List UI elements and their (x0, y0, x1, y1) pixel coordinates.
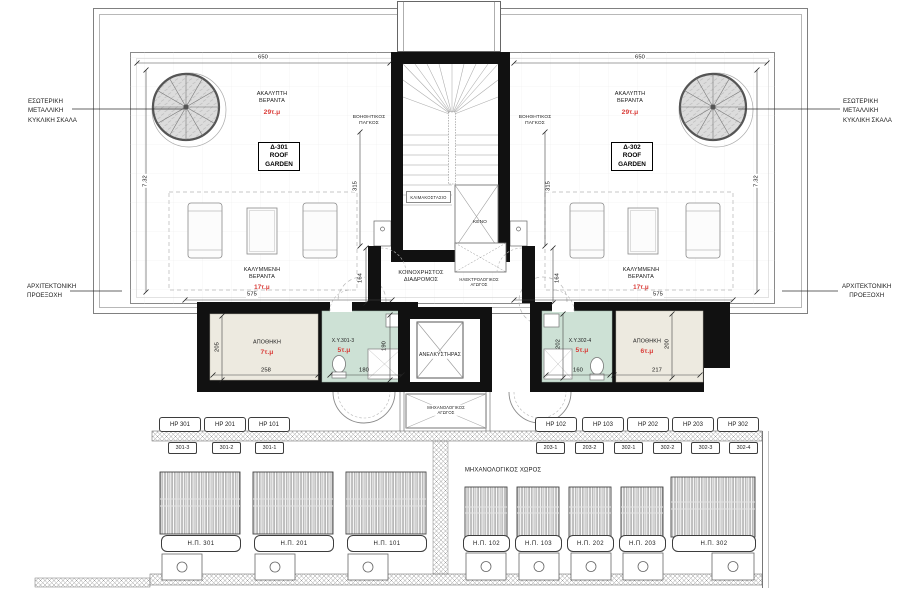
bench-label-right: ΒΟΗΘΗΤΙΚΟΣ ΠΑΓΚΟΣ (519, 115, 552, 127)
pergola-plate-101: Η.Π. 101 (347, 535, 427, 552)
void-label: ΚΕΝΟ (473, 220, 487, 226)
unit-tag-203-1: 203-1 (536, 442, 565, 454)
dim-storage-l-h: 205 (214, 341, 221, 353)
spiral-stair-note-left: ΕΣΩΤΕΡΙΚΗ ΜΕΤΑΛΛΙΚΗ ΚΥΚΛΙΚΗ ΣΚΑΛΑ (28, 97, 77, 125)
projection-note-right: ΑΡΧΙΤΕΚΤΟΝΙΚΗ ΠΡΟΕΞΟΧΗ (842, 282, 891, 301)
covered-label-right: ΚΑΛΥΜΜΕΝΗ ΒΕΡΑΝΤΑ (623, 267, 660, 281)
hp-tag-301: HP 301 (159, 417, 201, 432)
dim-wc-r-h: 202 (555, 338, 562, 350)
elevator-label: ΑΝΕΛΚΥΣΤΗΡΑΣ (418, 352, 462, 359)
unit-tag-301-1: 301-1 (255, 442, 284, 454)
dim-wc-l-h: 190 (381, 340, 388, 352)
dim-terrace-left: 315 (352, 180, 359, 192)
dim-storage-r-h: 200 (664, 338, 671, 350)
wc-left-area: 5τ.μ (338, 347, 351, 355)
hp-tag-203: HP 203 (672, 417, 714, 432)
stairwell-label: ΚΛΙΜΑΚΟΣΤΑΣΙΟ (406, 191, 451, 203)
unit-tag-301-3: 301-3 (168, 442, 197, 454)
stair-bulkhead (398, 2, 501, 52)
dim-roof-depth-right: 7.32 (753, 174, 760, 188)
pergola-plate-203: Η.Π. 203 (619, 535, 666, 552)
storage-right-area: 6τ.μ (641, 348, 654, 356)
unit-tag-302-4: 302-4 (729, 442, 758, 454)
toilet-left (333, 356, 346, 373)
pergola-plate-102: Η.Π. 102 (463, 535, 510, 552)
mechanical-duct-label: ΜΗΧΑΝΟΛΟΓΙΚΟΣ ΑΓΩΓΟΣ (426, 405, 466, 416)
dim-terrace-right: 315 (545, 180, 552, 192)
dim-storage-l-w: 258 (260, 367, 272, 374)
spiral-stair-note-right: ΕΣΩΤΕΡΙΚΗ ΜΕΤΑΛΛΙΚΗ ΚΥΚΛΙΚΗ ΣΚΑΛΑ (843, 97, 892, 125)
corridor-label: ΚΟΙΝΟΧΡΗΣΤΟΣ ΔΙΑΔΡΟΜΟΣ (398, 270, 443, 284)
storage-right-name: ΑΠΟΘΗΚΗ (633, 339, 661, 346)
wc-right-area: 5τ.μ (576, 347, 589, 355)
dim-wc-l-w: 180 (358, 367, 370, 374)
wc-right-name: X.Y.302-4 (569, 338, 592, 344)
hp-tag-103: HP 103 (582, 417, 624, 432)
toilet-right (591, 358, 604, 375)
terrace-label-right: ΑΚΑΛΥΠΤΗ ΒΕΡΑΝΤΑ (615, 91, 646, 105)
projection-note-left: ΑΡΧΙΤΕΚΤΟΝΙΚΗ ΠΡΟΕΞΟΧΗ (27, 282, 76, 301)
floorplan-linework (0, 0, 901, 589)
covered-label-left: ΚΑΛΥΜΜΕΝΗ ΒΕΡΑΝΤΑ (244, 267, 281, 281)
pergola-plate-201: Η.Π. 201 (254, 535, 334, 552)
unit-tag-302-3: 302-3 (691, 442, 720, 454)
hp-tag-102: HP 102 (535, 417, 577, 432)
pergolas (160, 472, 755, 537)
hp-tag-101: HP 101 (248, 417, 290, 432)
sink-right (544, 314, 559, 327)
dim-corridor-right: 164 (554, 272, 561, 284)
hp-tag-302: HP 302 (717, 417, 759, 432)
unit-tag-302-2: 302-2 (653, 442, 682, 454)
stair-tower (391, 52, 510, 262)
electrical-duct-label: ΗΛΕΚΤΡΟΛΟΓΙΚΟΣ ΑΓΩΓΟΣ (459, 277, 498, 288)
dim-wc-r-w: 160 (572, 367, 584, 374)
pergola-plate-301: Η.Π. 301 (161, 535, 241, 552)
unit-box-301: Δ-301 ROOF GARDEN (258, 142, 300, 171)
dim-roof-depth-left: 7.32 (142, 174, 149, 188)
storage-left-name: ΑΠΟΘΗΚΗ (253, 340, 281, 347)
unit-tag-302-1: 302-1 (614, 442, 643, 454)
floorplan-page: ΕΣΩΤΕΡΙΚΗ ΜΕΤΑΛΛΙΚΗ ΚΥΚΛΙΚΗ ΣΚΑΛΑ ΕΣΩΤΕΡ… (0, 0, 901, 589)
bench-label-left: ΒΟΗΘΗΤΙΚΟΣ ΠΑΓΚΟΣ (353, 115, 386, 127)
dim-storage-r-w: 217 (651, 367, 663, 374)
dim-roof-width-left: 650 (257, 54, 269, 61)
terrace-area-right: 29τ.μ (622, 109, 639, 117)
terrace-label-left: ΑΚΑΛΥΠΤΗ ΒΕΡΑΝΤΑ (257, 91, 288, 105)
dim-roof-width-right: 650 (634, 54, 646, 61)
dim-covered-left: 575 (246, 291, 258, 298)
wc-left-name: X.Y.301-3 (332, 338, 355, 344)
pergola-plate-202: Η.Π. 202 (567, 535, 614, 552)
dim-covered-right: 575 (652, 291, 664, 298)
terrace-area-left: 29τ.μ (264, 109, 281, 117)
unit-tag-301-2: 301-2 (212, 442, 241, 454)
hp-tag-201: HP 201 (204, 417, 246, 432)
elevator-shaft (398, 307, 492, 392)
pergola-plate-302: Η.Π. 302 (672, 535, 756, 552)
dim-corridor-left: 164 (357, 272, 364, 284)
covered-area-right: 17τ.μ (633, 284, 649, 292)
hp-tag-202: HP 202 (627, 417, 669, 432)
storage-left-area: 7τ.μ (261, 349, 274, 357)
pergola-plate-103: Η.Π. 103 (515, 535, 562, 552)
unit-tag-203-2: 203-2 (575, 442, 604, 454)
unit-box-302: Δ-302 ROOF GARDEN (611, 142, 653, 171)
mechanical-room-label: ΜΗΧΑΝΟΛΟΓΙΚΟΣ ΧΩΡΟΣ (465, 467, 541, 475)
